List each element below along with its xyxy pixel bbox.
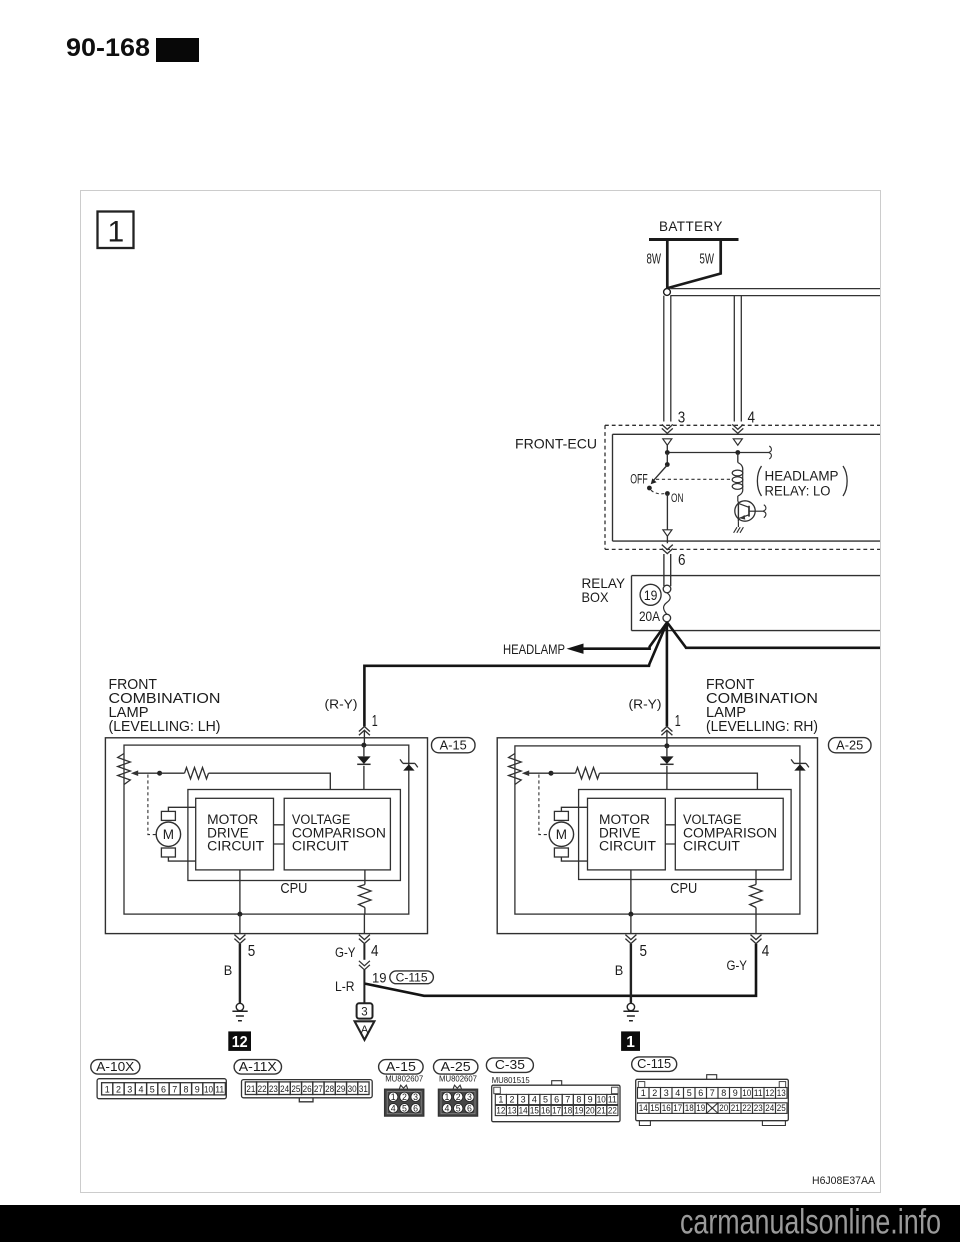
svg-text:19: 19 bbox=[372, 970, 387, 985]
svg-text:CIRCUIT: CIRCUIT bbox=[599, 838, 656, 853]
svg-text:C-35: C-35 bbox=[495, 1058, 525, 1072]
svg-text:1: 1 bbox=[105, 1085, 110, 1096]
svg-text:4: 4 bbox=[391, 1104, 396, 1114]
svg-text:1: 1 bbox=[391, 1092, 396, 1102]
svg-text:B: B bbox=[224, 962, 233, 978]
svg-text:2: 2 bbox=[510, 1095, 515, 1105]
svg-text:G-Y: G-Y bbox=[335, 945, 356, 960]
svg-text:CIRCUIT: CIRCUIT bbox=[207, 838, 264, 853]
svg-text:10: 10 bbox=[742, 1088, 751, 1098]
svg-text:2: 2 bbox=[456, 1092, 461, 1102]
svg-text:3: 3 bbox=[467, 1092, 472, 1102]
svg-text:5W: 5W bbox=[700, 251, 715, 267]
svg-text:29: 29 bbox=[336, 1084, 345, 1095]
svg-text:(R-Y): (R-Y) bbox=[629, 697, 662, 712]
svg-text:16: 16 bbox=[662, 1103, 671, 1113]
svg-text:BATTERY: BATTERY bbox=[659, 219, 723, 234]
svg-text:C-115: C-115 bbox=[396, 970, 428, 984]
svg-text:1: 1 bbox=[626, 1034, 635, 1051]
svg-text:A-25: A-25 bbox=[441, 1060, 471, 1074]
svg-text:17: 17 bbox=[552, 1106, 561, 1116]
svg-text:26: 26 bbox=[303, 1084, 312, 1095]
svg-text:A-11X: A-11X bbox=[239, 1060, 278, 1074]
svg-text:8: 8 bbox=[721, 1088, 726, 1098]
svg-text:BOX: BOX bbox=[582, 589, 610, 605]
svg-text:1: 1 bbox=[372, 713, 378, 730]
svg-text:6: 6 bbox=[467, 1104, 472, 1114]
svg-text:14: 14 bbox=[519, 1106, 528, 1116]
svg-text:9: 9 bbox=[195, 1085, 200, 1096]
svg-text:1: 1 bbox=[675, 713, 681, 730]
svg-text:CIRCUIT: CIRCUIT bbox=[683, 838, 740, 853]
svg-text:3: 3 bbox=[521, 1095, 526, 1105]
svg-text:H6J08E37AA: H6J08E37AA bbox=[812, 1175, 876, 1187]
svg-text:6: 6 bbox=[161, 1085, 166, 1096]
svg-text:A-15: A-15 bbox=[440, 739, 467, 753]
svg-text:4: 4 bbox=[675, 1088, 680, 1098]
svg-text:10: 10 bbox=[597, 1095, 606, 1105]
svg-text:22: 22 bbox=[742, 1103, 751, 1113]
svg-text:5: 5 bbox=[248, 943, 256, 960]
svg-text:CPU: CPU bbox=[670, 881, 697, 897]
svg-text:M: M bbox=[556, 827, 567, 842]
svg-text:MU802607: MU802607 bbox=[385, 1074, 423, 1084]
svg-text:6: 6 bbox=[698, 1088, 703, 1098]
svg-text:B: B bbox=[615, 962, 624, 978]
svg-text:19: 19 bbox=[574, 1106, 583, 1116]
svg-text:22: 22 bbox=[258, 1084, 267, 1095]
svg-text:9: 9 bbox=[588, 1095, 593, 1105]
svg-text:18: 18 bbox=[563, 1106, 572, 1116]
svg-text:19: 19 bbox=[644, 587, 658, 603]
svg-text:13: 13 bbox=[508, 1106, 517, 1116]
svg-text:1: 1 bbox=[641, 1088, 646, 1098]
svg-text:24: 24 bbox=[765, 1103, 774, 1113]
svg-text:A-15: A-15 bbox=[386, 1060, 416, 1074]
svg-text:20A: 20A bbox=[639, 608, 661, 624]
svg-text:CIRCUIT: CIRCUIT bbox=[292, 838, 349, 853]
svg-text:4: 4 bbox=[748, 410, 756, 427]
svg-text:20: 20 bbox=[719, 1103, 728, 1113]
svg-text:12: 12 bbox=[765, 1088, 774, 1098]
svg-text:C-115: C-115 bbox=[637, 1057, 671, 1071]
svg-text:22: 22 bbox=[608, 1106, 617, 1116]
svg-text:28: 28 bbox=[325, 1084, 334, 1095]
svg-text:5: 5 bbox=[640, 943, 648, 960]
svg-text:3: 3 bbox=[127, 1085, 132, 1096]
svg-text:16: 16 bbox=[541, 1106, 550, 1116]
svg-text:1: 1 bbox=[107, 216, 124, 249]
svg-text:1: 1 bbox=[498, 1095, 503, 1105]
svg-text:3: 3 bbox=[413, 1092, 418, 1102]
svg-text:8: 8 bbox=[183, 1085, 188, 1096]
svg-text:6: 6 bbox=[554, 1095, 559, 1105]
svg-text:3: 3 bbox=[664, 1088, 669, 1098]
svg-text:5: 5 bbox=[687, 1088, 692, 1098]
svg-text:14: 14 bbox=[639, 1103, 648, 1113]
svg-text:5: 5 bbox=[150, 1085, 155, 1096]
svg-text:4: 4 bbox=[445, 1104, 450, 1114]
svg-text:3: 3 bbox=[361, 1007, 367, 1019]
svg-text:RELAY: LO: RELAY: LO bbox=[765, 484, 831, 499]
svg-text:6: 6 bbox=[413, 1104, 418, 1114]
svg-text:A: A bbox=[361, 1024, 369, 1036]
svg-text:21: 21 bbox=[597, 1106, 606, 1116]
svg-text:A-10X: A-10X bbox=[96, 1060, 135, 1074]
svg-text:CPU: CPU bbox=[280, 881, 307, 897]
svg-text:11: 11 bbox=[608, 1095, 617, 1105]
svg-text:19: 19 bbox=[696, 1103, 705, 1113]
svg-text:21: 21 bbox=[731, 1103, 740, 1113]
svg-text:3: 3 bbox=[678, 410, 686, 427]
svg-text:1: 1 bbox=[445, 1092, 450, 1102]
svg-text:HEADLAMP: HEADLAMP bbox=[765, 469, 839, 484]
svg-text:20: 20 bbox=[586, 1106, 595, 1116]
svg-text:G-Y: G-Y bbox=[727, 958, 748, 973]
svg-text:2: 2 bbox=[652, 1088, 657, 1098]
svg-text:7: 7 bbox=[710, 1088, 715, 1098]
svg-text:18: 18 bbox=[685, 1103, 694, 1113]
svg-text:M: M bbox=[163, 827, 174, 842]
svg-text:6: 6 bbox=[678, 552, 686, 569]
svg-text:HEADLAMP: HEADLAMP bbox=[503, 642, 565, 657]
svg-text:4: 4 bbox=[138, 1085, 143, 1096]
svg-text:8: 8 bbox=[576, 1095, 581, 1105]
svg-text:5: 5 bbox=[543, 1095, 548, 1105]
svg-text:11: 11 bbox=[754, 1088, 763, 1098]
svg-text:9: 9 bbox=[733, 1088, 738, 1098]
svg-text:(LEVELLING: RH): (LEVELLING: RH) bbox=[706, 719, 818, 735]
svg-text:12: 12 bbox=[496, 1106, 505, 1116]
svg-text:FRONT-ECU: FRONT-ECU bbox=[515, 437, 597, 452]
svg-text:2: 2 bbox=[402, 1092, 407, 1102]
svg-text:23: 23 bbox=[269, 1084, 278, 1095]
svg-text:25: 25 bbox=[291, 1084, 300, 1095]
svg-text:13: 13 bbox=[777, 1088, 786, 1098]
svg-text:4: 4 bbox=[371, 943, 379, 960]
svg-text:23: 23 bbox=[754, 1103, 763, 1113]
svg-text:L-R: L-R bbox=[335, 979, 355, 994]
svg-text:MU801515: MU801515 bbox=[492, 1075, 530, 1085]
svg-text:15: 15 bbox=[530, 1106, 539, 1116]
svg-text:4: 4 bbox=[532, 1095, 537, 1105]
svg-text:2: 2 bbox=[116, 1085, 121, 1096]
svg-text:OFF: OFF bbox=[630, 472, 648, 487]
svg-text:ON: ON bbox=[671, 493, 684, 505]
svg-text:7: 7 bbox=[565, 1095, 570, 1105]
svg-text:17: 17 bbox=[673, 1103, 682, 1113]
svg-text:30: 30 bbox=[348, 1084, 357, 1095]
svg-text:5: 5 bbox=[402, 1104, 407, 1114]
svg-text:21: 21 bbox=[246, 1084, 255, 1095]
svg-text:carmanualsonline.info: carmanualsonline.info bbox=[680, 1203, 941, 1242]
svg-text:10: 10 bbox=[204, 1085, 213, 1096]
svg-text:25: 25 bbox=[777, 1103, 786, 1113]
svg-text:(R-Y): (R-Y) bbox=[325, 697, 358, 712]
svg-text:8W: 8W bbox=[647, 251, 662, 267]
svg-text:12: 12 bbox=[232, 1034, 248, 1051]
svg-text:15: 15 bbox=[650, 1103, 659, 1113]
svg-text:7: 7 bbox=[172, 1085, 177, 1096]
svg-text:(LEVELLING: LH): (LEVELLING: LH) bbox=[109, 719, 221, 735]
svg-text:27: 27 bbox=[314, 1084, 323, 1095]
svg-text:31: 31 bbox=[359, 1084, 368, 1095]
svg-text:90-168: 90-168 bbox=[66, 34, 150, 62]
svg-text:5: 5 bbox=[456, 1104, 461, 1114]
svg-text:4: 4 bbox=[762, 943, 770, 960]
svg-text:24: 24 bbox=[280, 1084, 289, 1095]
svg-text:MU802607: MU802607 bbox=[439, 1074, 477, 1084]
svg-text:A-25: A-25 bbox=[836, 739, 863, 753]
svg-text:11: 11 bbox=[215, 1085, 224, 1096]
